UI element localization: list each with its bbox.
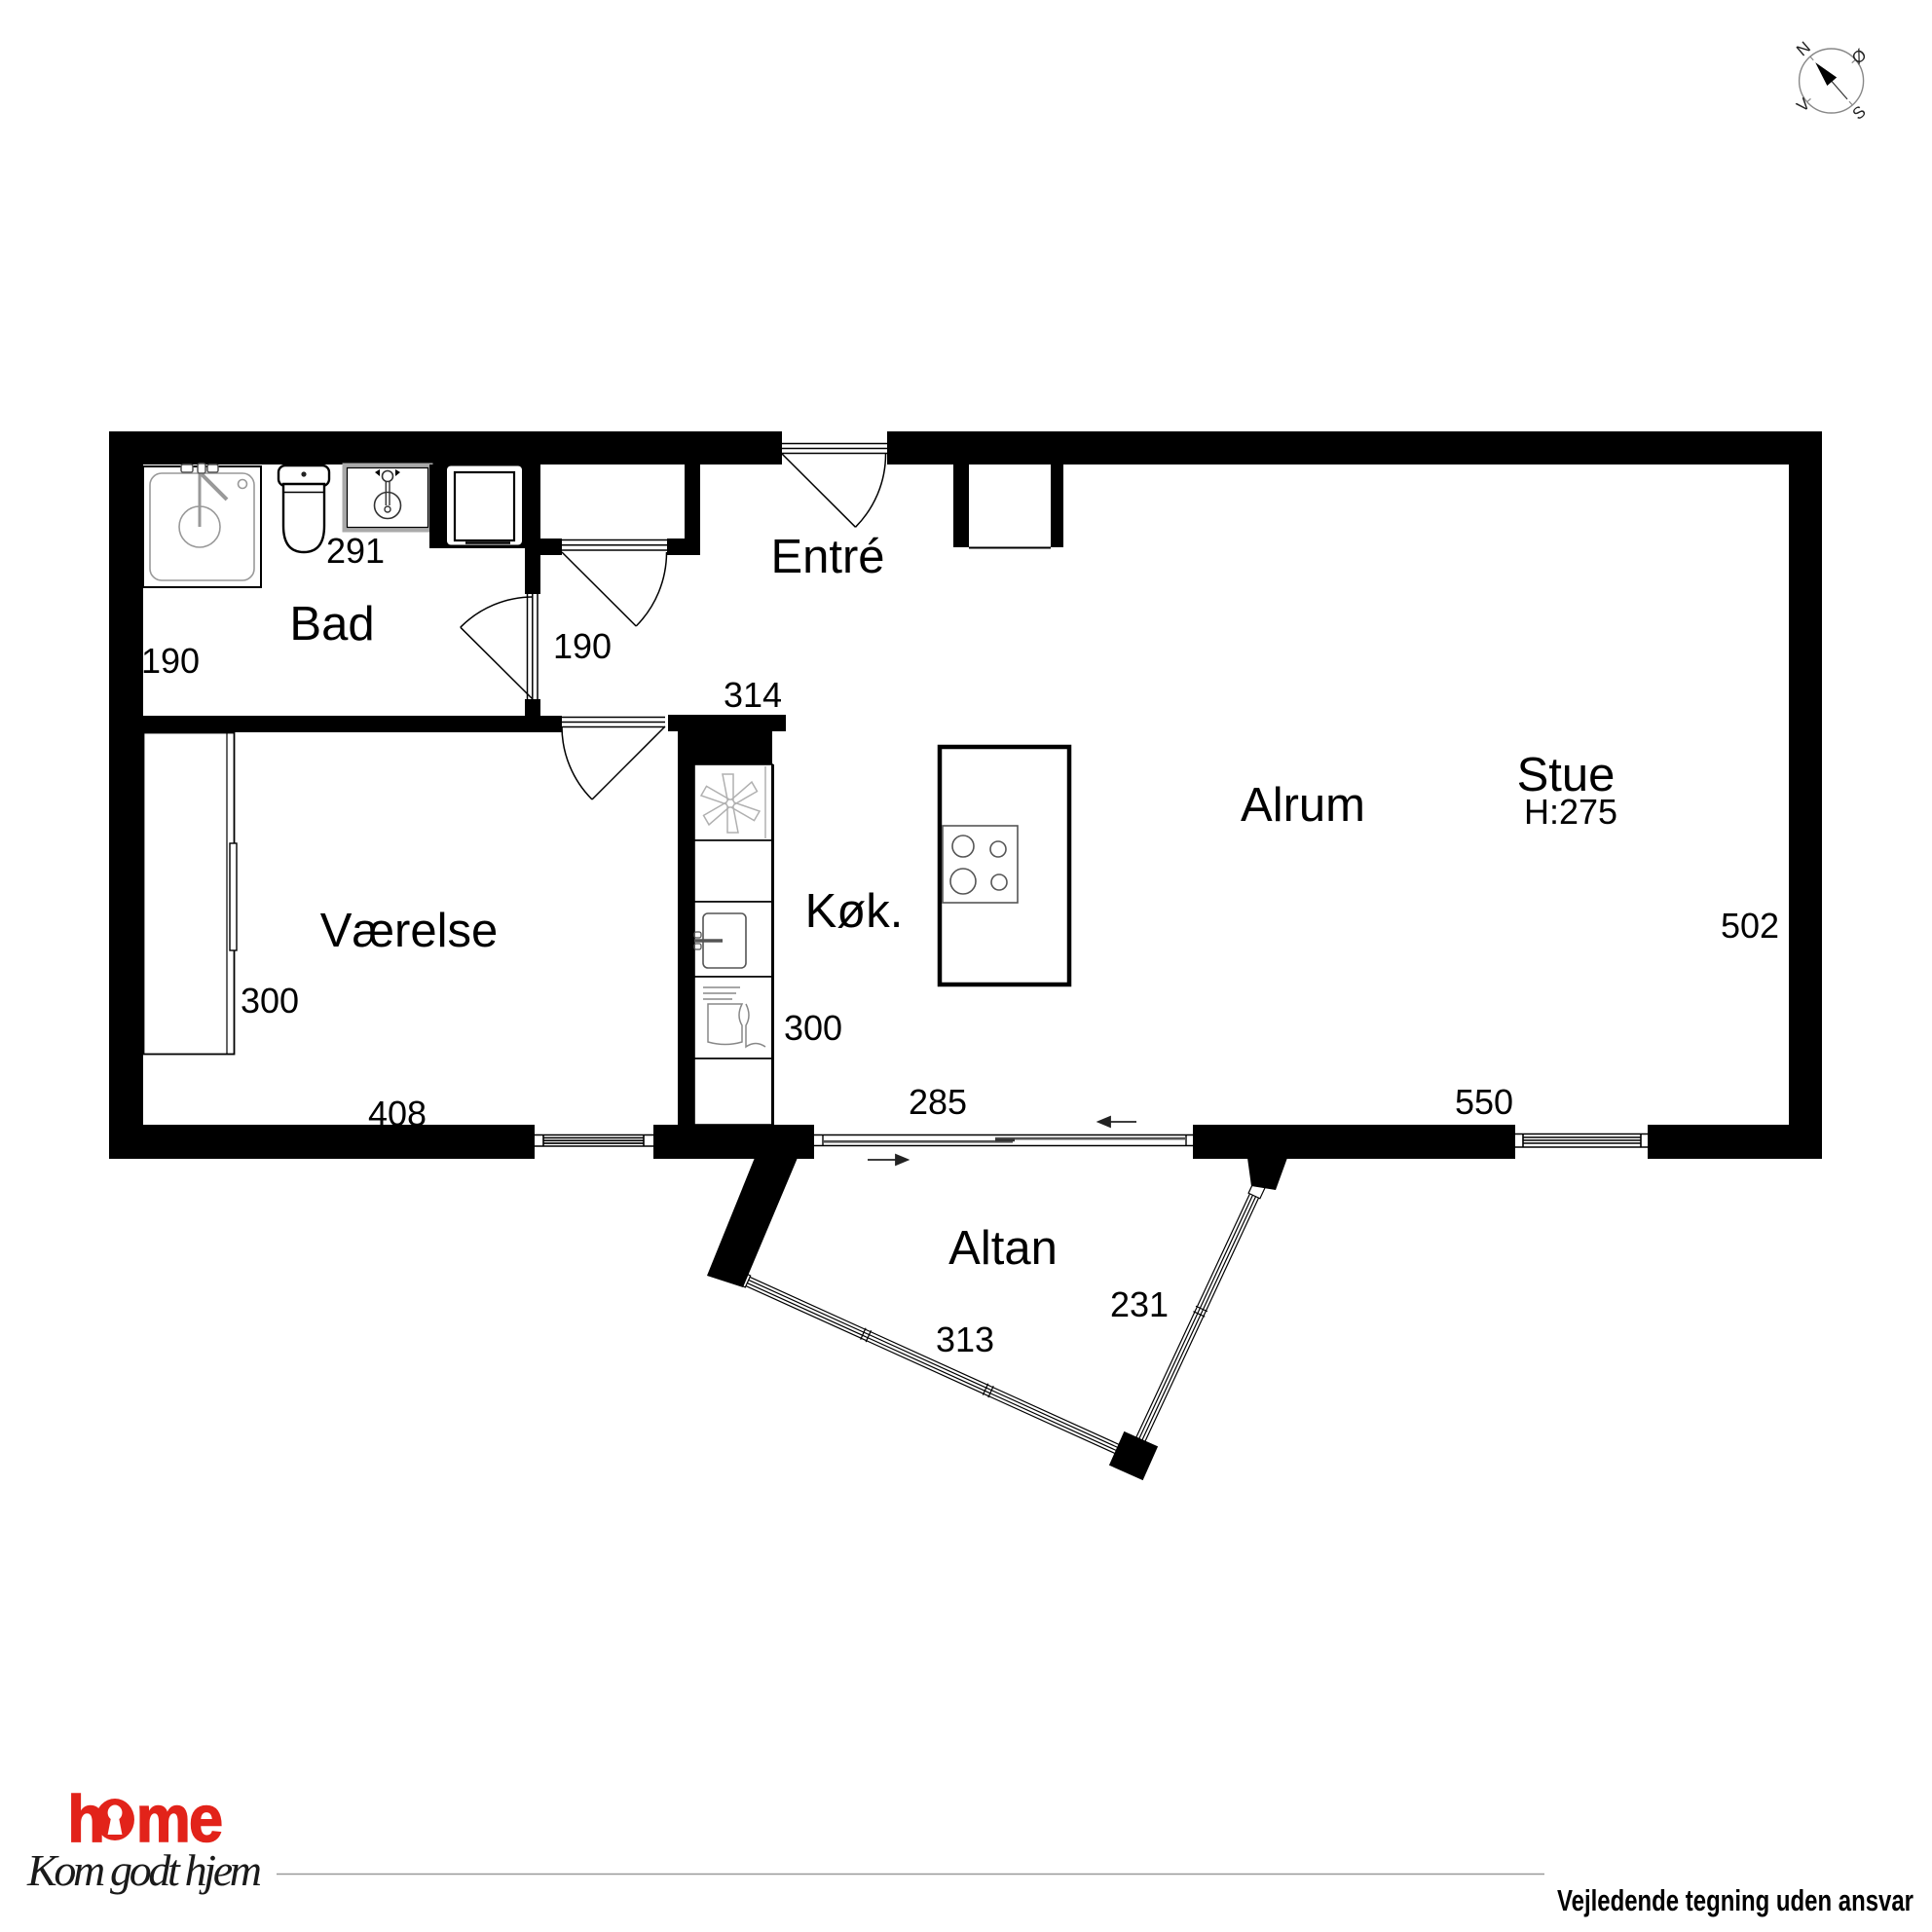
svg-text:285: 285 xyxy=(909,1082,967,1122)
svg-text:H:275: H:275 xyxy=(1524,792,1617,832)
svg-text:Bad: Bad xyxy=(289,598,374,650)
svg-text:190: 190 xyxy=(553,626,612,666)
svg-text:291: 291 xyxy=(326,531,385,571)
svg-text:231: 231 xyxy=(1110,1284,1169,1324)
svg-text:Entré: Entré xyxy=(770,531,884,583)
svg-text:300: 300 xyxy=(241,981,299,1021)
svg-text:Vejledende tegning uden ansvar: Vejledende tegning uden ansvar xyxy=(1557,1883,1913,1917)
svg-text:313: 313 xyxy=(936,1319,994,1359)
svg-text:Værelse: Værelse xyxy=(320,905,498,957)
svg-text:502: 502 xyxy=(1721,906,1779,946)
svg-text:Altan: Altan xyxy=(948,1222,1058,1275)
svg-text:314: 314 xyxy=(724,675,782,715)
svg-text:Kom godt hjem: Kom godt hjem xyxy=(26,1845,262,1895)
svg-text:300: 300 xyxy=(784,1008,842,1048)
svg-text:190: 190 xyxy=(141,641,200,681)
svg-text:408: 408 xyxy=(368,1094,427,1133)
svg-text:550: 550 xyxy=(1455,1082,1513,1122)
svg-text:Alrum: Alrum xyxy=(1241,779,1365,832)
svg-text:Køk.: Køk. xyxy=(805,885,904,938)
